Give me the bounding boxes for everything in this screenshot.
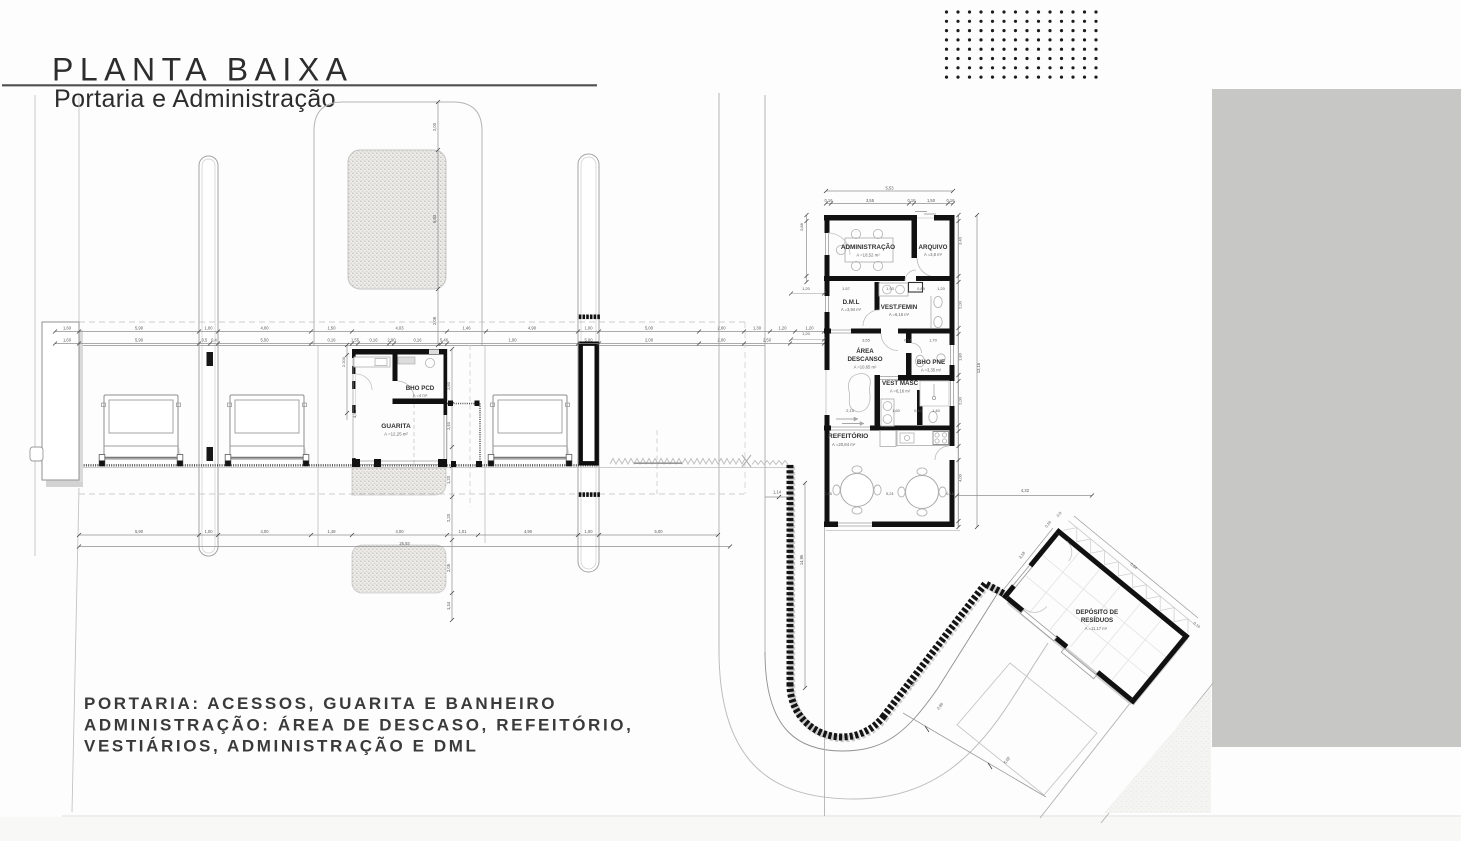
svg-text:4,03: 4,03	[396, 326, 405, 331]
svg-text:PORTARIA: ACESSOS, GUARITA E B: PORTARIA: ACESSOS, GUARITA E BANHEIRO	[84, 694, 557, 713]
svg-text:VEST.FEMIN: VEST.FEMIN	[881, 304, 918, 311]
svg-text:4,90: 4,90	[524, 529, 533, 534]
svg-text:PLANTA BAIXA: PLANTA BAIXA	[52, 52, 354, 88]
svg-text:A =6,16 m²: A =6,16 m²	[890, 389, 911, 394]
svg-text:2,08: 2,08	[432, 316, 437, 325]
svg-text:GUARITA: GUARITA	[381, 423, 411, 430]
svg-text:1,57: 1,57	[842, 286, 851, 291]
svg-text:1,93: 1,93	[886, 286, 895, 291]
svg-text:0,16: 0,16	[414, 338, 423, 343]
svg-text:5,93: 5,93	[432, 214, 437, 223]
svg-text:2.200: 2.200	[341, 356, 346, 367]
svg-text:Portaria e Administração: Portaria e Administração	[54, 85, 336, 113]
svg-text:5,53: 5,53	[886, 186, 895, 191]
svg-text:0,16: 0,16	[824, 491, 833, 496]
svg-text:1,14: 1,14	[773, 490, 782, 495]
svg-text:1,55: 1,55	[351, 338, 360, 343]
svg-text:5,46: 5,46	[440, 338, 449, 343]
svg-text:2,00: 2,00	[718, 326, 727, 331]
svg-text:BHO PNE: BHO PNE	[917, 359, 945, 366]
svg-text:2,00: 2,00	[718, 338, 727, 343]
svg-text:4,32: 4,32	[1021, 488, 1030, 493]
svg-text:4,00: 4,00	[396, 529, 405, 534]
svg-text:0,40: 0,40	[914, 408, 923, 413]
svg-text:1,46: 1,46	[463, 326, 472, 331]
svg-text:1,00: 1,00	[509, 338, 518, 343]
svg-text:2,00: 2,00	[645, 338, 654, 343]
svg-text:ÁREA: ÁREA	[856, 348, 874, 355]
svg-text:0,16: 0,16	[947, 198, 956, 203]
svg-text:5,00: 5,00	[655, 529, 664, 534]
svg-text:1,80: 1,80	[958, 352, 963, 361]
svg-text:0,16: 0,16	[370, 338, 379, 343]
svg-text:ADMINISTRAÇÃO: ADMINISTRAÇÃO	[841, 242, 895, 251]
svg-text:A =10,65 m²: A =10,65 m²	[854, 365, 877, 370]
svg-text:1,48: 1,48	[328, 529, 337, 534]
svg-text:0,16: 0,16	[904, 338, 913, 343]
svg-text:5,21: 5,21	[886, 491, 895, 496]
svg-text:1,20: 1,20	[937, 286, 946, 291]
svg-text:2,50: 2,50	[763, 338, 772, 343]
svg-text:25,93: 25,93	[399, 541, 410, 546]
svg-text:0,4: 0,4	[211, 338, 217, 343]
svg-text:D.M.L: D.M.L	[843, 299, 860, 306]
svg-text:1,40: 1,40	[932, 408, 941, 413]
svg-text:1,34: 1,34	[446, 601, 451, 610]
svg-text:1,50: 1,50	[328, 326, 337, 331]
svg-text:0,89: 0,89	[917, 286, 926, 291]
svg-text:1,00: 1,00	[585, 529, 594, 534]
svg-text:2,00: 2,00	[958, 396, 963, 405]
svg-text:0,16: 0,16	[908, 198, 917, 203]
svg-text:1,00: 1,00	[585, 326, 594, 331]
svg-text:A =6,16 m²: A =6,16 m²	[889, 312, 910, 317]
svg-text:4,90: 4,90	[528, 326, 537, 331]
svg-text:2,00: 2,00	[958, 300, 963, 309]
svg-text:ARQUIVO: ARQUIVO	[919, 244, 948, 251]
svg-text:1,30: 1,30	[753, 326, 762, 331]
svg-text:0,16: 0,16	[328, 338, 337, 343]
svg-text:A =18,52 m²: A =18,52 m²	[856, 253, 880, 258]
svg-text:14,95: 14,95	[799, 554, 804, 565]
svg-text:A =3,35 m²: A =3,35 m²	[921, 368, 942, 373]
svg-text:2,05: 2,05	[446, 563, 451, 572]
svg-text:A =20,84 m²: A =20,84 m²	[832, 442, 856, 447]
svg-text:2,20: 2,20	[446, 513, 451, 522]
svg-text:1,00: 1,00	[205, 529, 214, 534]
svg-text:3,40: 3,40	[958, 236, 963, 245]
svg-text:4,00: 4,00	[261, 326, 270, 331]
svg-text:2,00: 2,00	[432, 122, 437, 131]
svg-text:5,00: 5,00	[585, 338, 594, 343]
svg-text:1,70: 1,70	[929, 338, 938, 343]
svg-text:3,55: 3,55	[862, 338, 871, 343]
svg-text:1,60: 1,60	[63, 326, 72, 331]
svg-text:VESTIÁRIOS, ADMINISTRAÇÃO E DM: VESTIÁRIOS, ADMINISTRAÇÃO E DML	[84, 736, 478, 756]
svg-text:13,16: 13,16	[976, 362, 981, 373]
svg-text:1,20: 1,20	[802, 331, 811, 336]
svg-text:5,90: 5,90	[135, 326, 144, 331]
svg-text:4,00: 4,00	[958, 473, 963, 482]
svg-text:0,5: 0,5	[202, 338, 208, 343]
svg-text:0,16: 0,16	[825, 198, 834, 203]
svg-text:1,60: 1,60	[892, 408, 901, 413]
svg-text:1,20: 1,20	[806, 326, 815, 331]
svg-text:A =11,17 m²: A =11,17 m²	[1085, 626, 1108, 631]
svg-text:A =12,25 m²: A =12,25 m²	[384, 432, 408, 437]
svg-text:3,55: 3,55	[866, 198, 875, 203]
svg-text:ADMINISTRAÇÃO: ÁREA DE DESCASO: ADMINISTRAÇÃO: ÁREA DE DESCASO, REFEITÓR…	[84, 714, 633, 734]
svg-text:A =3,8 m²: A =3,8 m²	[924, 252, 943, 257]
svg-text:DESCANSO: DESCANSO	[847, 356, 882, 363]
svg-text:DEPÓSITO DE: DEPÓSITO DE	[1076, 608, 1118, 616]
svg-text:2,13: 2,13	[846, 408, 855, 413]
svg-text:1,60: 1,60	[63, 338, 72, 343]
svg-text:1,01: 1,01	[459, 529, 468, 534]
svg-text:REFEITÓRIO: REFEITÓRIO	[828, 431, 868, 440]
svg-text:5,00: 5,00	[645, 326, 654, 331]
svg-text:1,20: 1,20	[779, 326, 788, 331]
svg-text:2,90: 2,90	[388, 338, 397, 343]
svg-text:1,00: 1,00	[205, 326, 214, 331]
svg-text:A =3,94 m²: A =3,94 m²	[841, 307, 862, 312]
svg-text:1,20: 1,20	[446, 475, 451, 484]
svg-text:A =4 m²: A =4 m²	[413, 393, 428, 398]
svg-text:RESÍDUOS: RESÍDUOS	[1081, 616, 1113, 624]
svg-text:0,88: 0,88	[799, 222, 804, 231]
svg-text:5,90: 5,90	[135, 338, 144, 343]
svg-text:BHO PCD: BHO PCD	[406, 385, 435, 392]
svg-text:0,16: 0,16	[946, 491, 955, 496]
svg-text:4,00: 4,00	[261, 529, 270, 534]
svg-text:VEST MASC: VEST MASC	[882, 380, 919, 387]
svg-text:1,50: 1,50	[927, 198, 936, 203]
svg-text:1,20: 1,20	[802, 286, 811, 291]
svg-text:5,90: 5,90	[135, 529, 144, 534]
svg-text:5,50: 5,50	[261, 338, 270, 343]
